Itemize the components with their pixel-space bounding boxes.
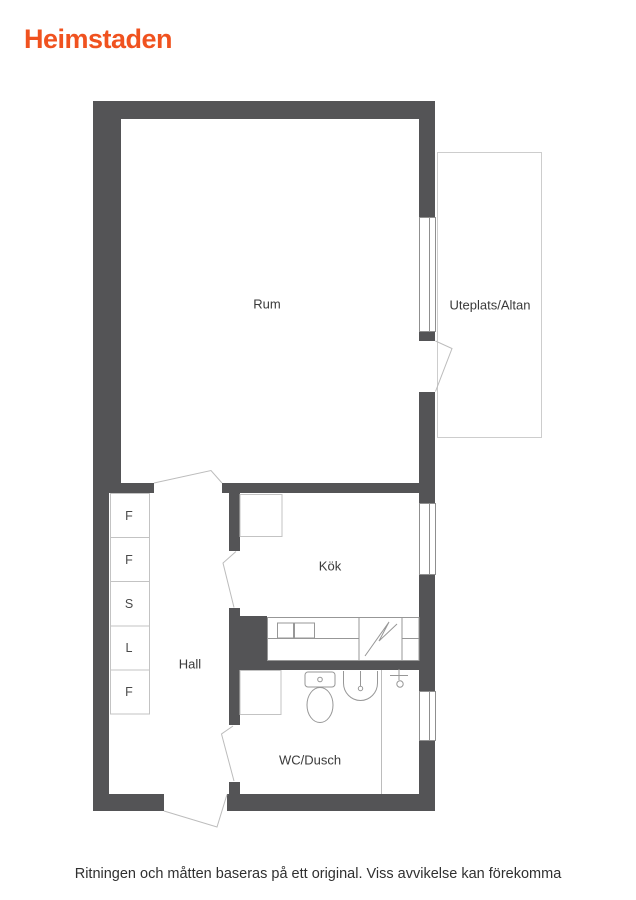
room-label-rum: Rum	[253, 297, 280, 312]
sink-basin	[278, 623, 294, 638]
closet-letter-2: F	[125, 553, 133, 567]
uteplats-outline	[438, 153, 542, 438]
closet-letter-1: F	[125, 509, 133, 523]
toilet-icon	[305, 672, 335, 723]
shower-icon	[390, 669, 408, 687]
window-wc-icon	[420, 692, 436, 741]
closet-letter-5: F	[125, 685, 133, 699]
floorplan-page: Heimstaden	[0, 0, 636, 900]
room-label-uteplats: Uteplats/Altan	[450, 298, 531, 313]
sink-icon	[344, 671, 378, 701]
closet-letter-3: S	[125, 597, 133, 611]
room-label-kok: Kök	[319, 559, 341, 574]
window-kok-icon	[420, 504, 436, 575]
sink-basin	[295, 623, 315, 638]
window-rum-icon	[420, 218, 436, 332]
fridge-icon	[240, 495, 282, 537]
stove-icon	[359, 618, 402, 661]
closet-letter-4: L	[126, 641, 133, 655]
room-label-hall: Hall	[179, 657, 201, 672]
disclaimer-text: Ritningen och måtten baseras på ett orig…	[0, 866, 636, 882]
door-swing-wc	[222, 726, 235, 781]
room-label-wc: WC/Dusch	[279, 753, 341, 768]
door-swing-kok	[223, 552, 236, 608]
wc-cabinet-icon	[240, 671, 281, 715]
door-swing-entrance	[164, 795, 227, 828]
kitchen-counter	[268, 618, 420, 661]
door-swing-rum	[154, 471, 222, 484]
